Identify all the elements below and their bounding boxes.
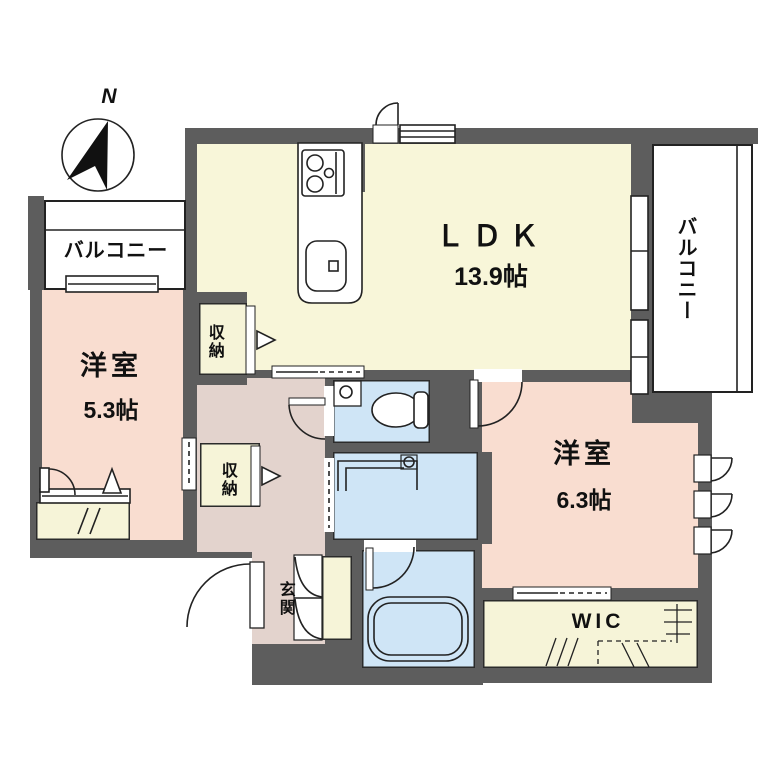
- bay-window: [40, 468, 130, 534]
- door-bedroom-large: [470, 369, 522, 428]
- compass-icon: [62, 119, 134, 191]
- shoe-cabinet-doors: [294, 555, 322, 640]
- door-storage-mid: [251, 446, 280, 506]
- ldk-name: ＬＤＫ: [411, 222, 571, 252]
- storage-mid-label: 収納: [218, 450, 235, 510]
- wic-label: WIC: [548, 611, 648, 633]
- stove-icon: [302, 150, 344, 196]
- hand-basin-icon: [334, 381, 361, 406]
- window-ldk-top: [400, 125, 455, 143]
- door-ldk-top: [373, 103, 398, 143]
- door-bathroom: [364, 540, 416, 590]
- floor-plan: N バルコニー バルコニー ＬＤＫ 13.9帖 洋室 5.3帖 洋室 6.3帖 …: [0, 0, 768, 768]
- casement-windows: [694, 455, 732, 554]
- compass-north-label: N: [94, 86, 124, 108]
- balcony-right-label: バルコニー: [674, 198, 695, 338]
- bedroom-large-name: 洋室: [528, 440, 640, 468]
- door-ldk-hall: [272, 366, 364, 378]
- entrance-label: 玄関: [276, 568, 293, 630]
- plan-linework: [0, 0, 768, 768]
- front-door: [187, 562, 264, 628]
- kitchen-sink-icon: [306, 241, 346, 291]
- door-washroom: [324, 458, 334, 532]
- ldk-size: 13.9帖: [411, 264, 571, 290]
- balcony-left-label: バルコニー: [48, 241, 184, 262]
- storage-top-label: 収納: [205, 312, 222, 372]
- bathtub-icon: [368, 597, 468, 661]
- window-bedroom-large-right-top: [631, 320, 648, 394]
- bedroom-small-size: 5.3帖: [55, 398, 167, 422]
- window-ldk-right: [631, 196, 648, 310]
- door-bedroom-small: [182, 438, 196, 490]
- bedroom-small-name: 洋室: [55, 352, 167, 380]
- window-bedroom-small-top: [66, 276, 158, 292]
- bedroom-large-size: 6.3帖: [528, 488, 640, 512]
- door-toilet: [289, 386, 334, 439]
- vanity-icon: [338, 455, 417, 491]
- door-wic: [513, 587, 611, 600]
- toilet-icon: [372, 392, 428, 428]
- door-storage-top: [246, 306, 275, 374]
